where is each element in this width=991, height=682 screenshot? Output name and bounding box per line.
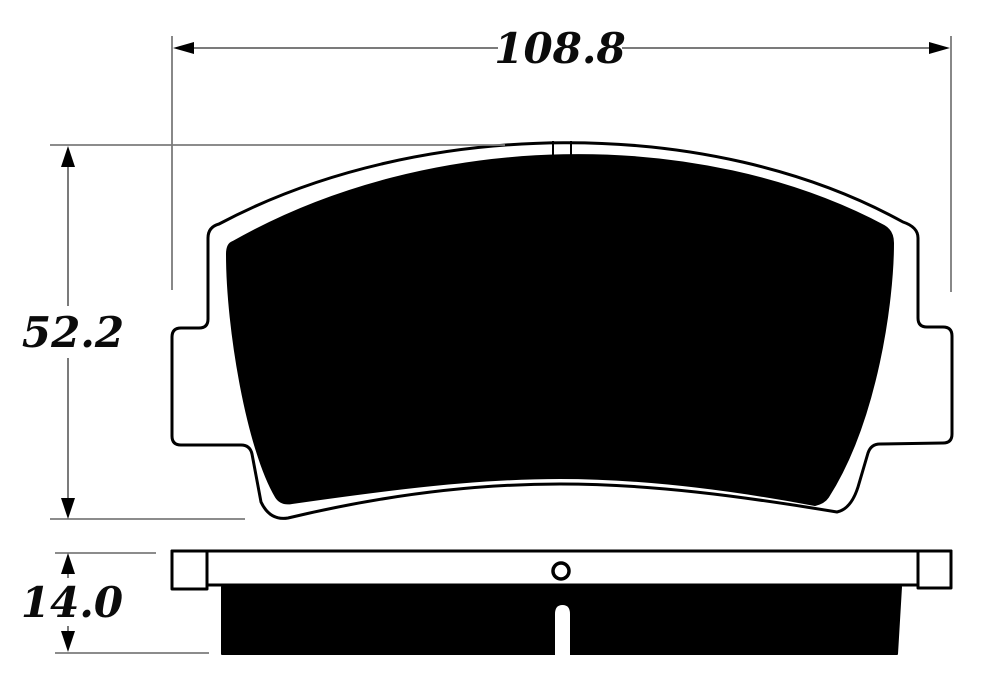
backplate-right-ear [918,551,951,588]
height-dimension-label: 52.2 [22,308,124,357]
mounting-hole [553,563,569,579]
front-view [172,141,952,518]
brake-pad-diagram: 108.8 52.2 14.0 [0,0,991,682]
arrowhead-down-icon [61,631,75,652]
thickness-dimension-label: 14.0 [21,578,123,627]
arrowhead-right-icon [929,42,950,54]
friction-material [227,155,893,505]
arrowhead-left-icon [173,42,194,54]
width-dimension-label: 108.8 [494,24,626,73]
wear-slot [555,605,570,656]
diagram-canvas: 108.8 52.2 14.0 [0,0,991,682]
arrowhead-down-icon [61,498,75,519]
side-view [172,551,951,656]
backplate-left-ear [172,551,207,589]
arrowhead-up-icon [61,146,75,167]
arrowhead-up-icon [61,553,75,574]
